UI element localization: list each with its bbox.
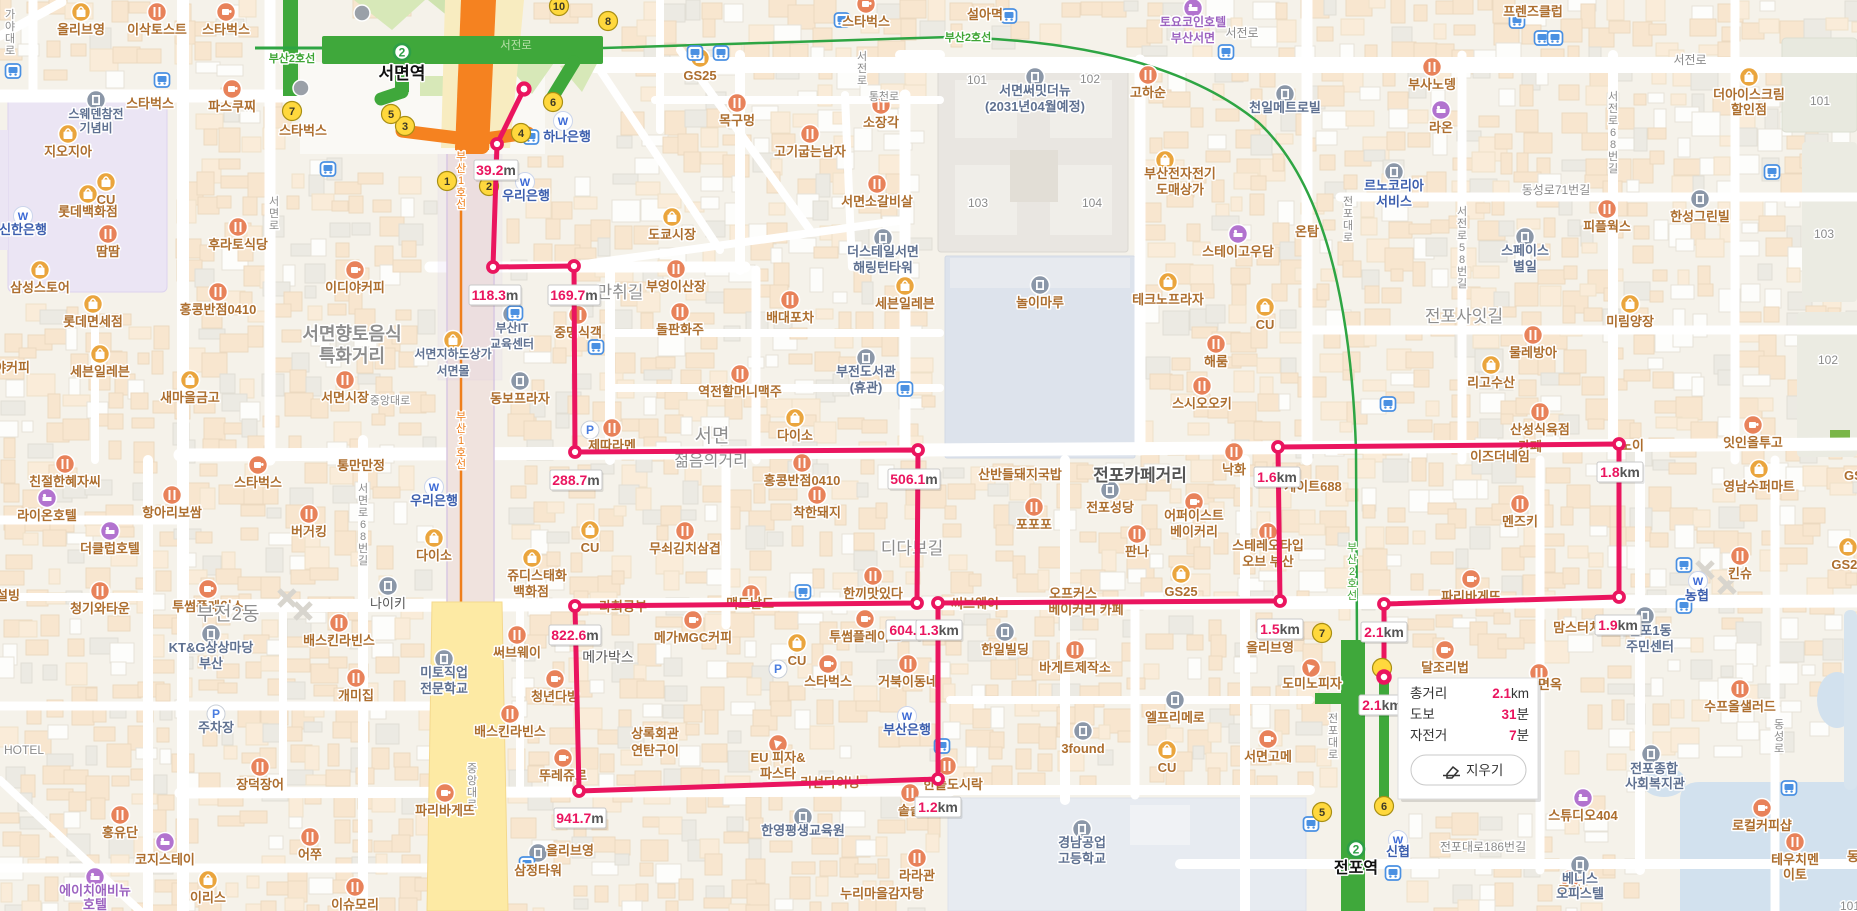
svg-text:부: 부 xyxy=(456,150,466,163)
svg-text:설아멱: 설아멱 xyxy=(967,7,1003,22)
svg-text:신한은행: 신한은행 xyxy=(0,222,47,237)
svg-text:착한돼지: 착한돼지 xyxy=(793,505,841,520)
svg-text:성: 성 xyxy=(1774,730,1784,743)
svg-text:3: 3 xyxy=(402,121,408,133)
svg-text:라온: 라온 xyxy=(1429,120,1453,135)
svg-text:배스킨라빈스: 배스킨라빈스 xyxy=(474,724,546,739)
svg-text:서면역: 서면역 xyxy=(379,64,426,83)
svg-text:스타벅스: 스타벅스 xyxy=(234,475,282,490)
svg-text:이즈더네임: 이즈더네임 xyxy=(1470,449,1530,464)
svg-text:어퍼이스트: 어퍼이스트 xyxy=(1164,508,1224,523)
svg-text:스테레오타입: 스테레오타입 xyxy=(1232,538,1304,553)
svg-text:연탄구이: 연탄구이 xyxy=(631,743,679,758)
svg-text:전: 전 xyxy=(1457,217,1467,230)
svg-text:총거리: 총거리 xyxy=(1410,686,1447,701)
svg-text:사회복지관: 사회복지관 xyxy=(1625,776,1685,791)
svg-text:2: 2 xyxy=(486,181,492,193)
svg-text:자전거: 자전거 xyxy=(1410,728,1447,743)
svg-text:한일빌딩: 한일빌딩 xyxy=(981,642,1029,657)
svg-text:길: 길 xyxy=(1457,277,1467,290)
svg-text:6: 6 xyxy=(550,97,556,109)
svg-text:서면지하도상가: 서면지하도상가 xyxy=(414,346,491,361)
svg-text:6: 6 xyxy=(1610,127,1616,139)
svg-text:롯데면세점: 롯데면세점 xyxy=(63,314,123,329)
svg-text:1: 1 xyxy=(458,175,464,187)
svg-text:미림양장: 미림양장 xyxy=(1606,314,1654,329)
svg-text:땀땀: 땀땀 xyxy=(96,244,120,259)
svg-text:로컬커피샵: 로컬커피샵 xyxy=(1732,818,1792,833)
svg-text:프렌즈클럽: 프렌즈클럽 xyxy=(1503,4,1563,19)
svg-text:포: 포 xyxy=(1343,208,1353,220)
svg-text:고등학교: 고등학교 xyxy=(1058,851,1106,866)
svg-text:스타벅스: 스타벅스 xyxy=(202,22,250,37)
svg-text:전: 전 xyxy=(857,62,867,75)
svg-text:동보프라자: 동보프라자 xyxy=(490,391,550,406)
svg-text:신협: 신협 xyxy=(1386,844,1410,859)
svg-text:고기굽는남자: 고기굽는남자 xyxy=(774,144,846,159)
svg-text:온탐: 온탐 xyxy=(1295,224,1319,239)
svg-text:CU: CU xyxy=(1256,317,1275,332)
svg-text:친절한혜자씨: 친절한혜자씨 xyxy=(29,474,101,489)
svg-text:822.6m: 822.6m xyxy=(551,627,599,643)
svg-text:거북이동네: 거북이동네 xyxy=(878,674,938,689)
svg-text:서: 서 xyxy=(857,50,867,63)
svg-text:이삭토스트: 이삭토스트 xyxy=(127,22,187,37)
svg-text:서: 서 xyxy=(269,195,279,208)
svg-text:부전2동: 부전2동 xyxy=(196,603,259,625)
svg-text:잇인올투고: 잇인올투고 xyxy=(1723,435,1783,450)
svg-text:서: 서 xyxy=(1608,90,1618,103)
svg-text:홍콩반점0410: 홍콩반점0410 xyxy=(764,473,841,488)
svg-text:누리마을감자탕: 누리마을감자탕 xyxy=(840,886,924,901)
svg-text:169.7m: 169.7m xyxy=(550,287,598,303)
svg-text:면옥: 면옥 xyxy=(1538,677,1562,692)
svg-text:우리은행: 우리은행 xyxy=(502,188,550,203)
svg-text:대: 대 xyxy=(1328,736,1338,749)
svg-text:CU: CU xyxy=(1158,760,1177,775)
svg-text:도매상가: 도매상가 xyxy=(1156,182,1204,197)
svg-text:CU: CU xyxy=(97,192,116,207)
svg-text:도쿄시장: 도쿄시장 xyxy=(648,227,696,242)
svg-text:지우기: 지우기 xyxy=(1466,763,1503,778)
svg-text:백화점: 백화점 xyxy=(513,584,549,599)
svg-text:호: 호 xyxy=(456,186,466,199)
svg-text:부산2호선: 부산2호선 xyxy=(945,30,992,44)
svg-text:산: 산 xyxy=(456,162,466,175)
svg-text:288.7m: 288.7m xyxy=(552,472,600,488)
svg-text:8: 8 xyxy=(1610,139,1616,151)
svg-text:메가MGC커피: 메가MGC커피 xyxy=(654,630,732,645)
svg-text:4: 4 xyxy=(518,128,525,140)
svg-text:부: 부 xyxy=(456,410,466,423)
svg-text:르노코리아: 르노코리아 xyxy=(1364,178,1424,193)
svg-text:2: 2 xyxy=(399,46,406,60)
svg-text:941.7m: 941.7m xyxy=(556,810,604,826)
svg-text:삼정타워: 삼정타워 xyxy=(514,863,562,878)
svg-text:미토직업: 미토직업 xyxy=(420,665,468,680)
svg-text:1.6km: 1.6km xyxy=(1257,469,1297,485)
svg-text:6: 6 xyxy=(1381,801,1387,813)
svg-text:스웨덴참전: 스웨덴참전 xyxy=(68,106,123,121)
svg-text:킨슈: 킨슈 xyxy=(1728,566,1752,581)
svg-text:앙: 앙 xyxy=(467,774,477,787)
svg-text:부산은행: 부산은행 xyxy=(883,722,931,737)
svg-text:부산전자전기: 부산전자전기 xyxy=(1144,166,1216,181)
svg-text:1.3km: 1.3km xyxy=(919,622,959,638)
svg-text:별일: 별일 xyxy=(1513,259,1537,274)
svg-text:전포성당: 전포성당 xyxy=(1086,500,1134,515)
svg-text:에이치애비뉴: 에이치애비뉴 xyxy=(59,883,131,898)
svg-text:로: 로 xyxy=(1608,115,1618,127)
svg-text:배스킨라빈스: 배스킨라빈스 xyxy=(303,633,375,648)
svg-text:서면시장: 서면시장 xyxy=(321,390,369,405)
svg-text:메가박스: 메가박스 xyxy=(582,649,634,665)
svg-text:장덕장어: 장덕장어 xyxy=(236,777,284,792)
svg-text:중명식객: 중명식객 xyxy=(554,325,602,340)
svg-text:부엉이산장: 부엉이산장 xyxy=(646,279,706,294)
svg-text:청기와타운: 청기와타운 xyxy=(70,601,130,616)
svg-text:(2031년04월예정): (2031년04월예정) xyxy=(985,99,1085,114)
svg-text:604.: 604. xyxy=(889,622,916,638)
svg-text:서면: 서면 xyxy=(695,425,730,447)
svg-text:도미노피자: 도미노피자 xyxy=(1282,676,1342,691)
svg-text:주민센터: 주민센터 xyxy=(1626,639,1674,654)
svg-text:부사노뎅: 부사노뎅 xyxy=(1408,77,1456,92)
svg-text:면: 면 xyxy=(358,494,368,507)
svg-text:103: 103 xyxy=(1814,227,1834,241)
svg-text:8: 8 xyxy=(605,16,611,28)
svg-text:이토: 이토 xyxy=(1783,867,1807,882)
svg-text:대: 대 xyxy=(467,786,477,799)
svg-text:스타벅스: 스타벅스 xyxy=(126,96,174,111)
svg-text:교육센터: 교육센터 xyxy=(490,336,534,351)
svg-text:8: 8 xyxy=(1459,254,1465,266)
svg-text:면: 면 xyxy=(269,207,279,220)
svg-text:전문학교: 전문학교 xyxy=(420,681,468,696)
svg-text:103: 103 xyxy=(968,196,988,210)
svg-text:멘즈키: 멘즈키 xyxy=(1502,514,1538,529)
svg-text:써브웨이: 써브웨이 xyxy=(493,645,541,660)
svg-text:2.1km: 2.1km xyxy=(1492,686,1529,701)
svg-text:고하순: 고하순 xyxy=(1130,85,1166,100)
svg-text:6: 6 xyxy=(360,519,366,531)
svg-text:파스타: 파스타 xyxy=(760,766,796,781)
svg-text:HOTEL: HOTEL xyxy=(4,743,44,757)
svg-text:1: 1 xyxy=(444,176,450,188)
svg-text:파스쿠찌: 파스쿠찌 xyxy=(208,99,256,114)
svg-text:서: 서 xyxy=(358,482,368,495)
svg-text:서면써밋더뉴: 서면써밋더뉴 xyxy=(999,83,1071,98)
svg-text:이디야커피: 이디야커피 xyxy=(325,280,385,295)
svg-text:도보: 도보 xyxy=(1410,707,1435,722)
svg-text:통만만정: 통만만정 xyxy=(337,458,385,473)
svg-text:선: 선 xyxy=(456,198,466,211)
svg-text:세븐일레븐: 세븐일레븐 xyxy=(875,296,935,311)
svg-text:로: 로 xyxy=(269,220,279,232)
svg-text:다이소: 다이소 xyxy=(416,548,452,563)
svg-text:로: 로 xyxy=(1457,230,1467,242)
svg-text:1.5km: 1.5km xyxy=(1260,621,1300,637)
svg-text:특화거리: 특화거리 xyxy=(319,346,385,366)
svg-text:오브 부산: 오브 부산 xyxy=(1242,554,1293,569)
svg-text:대: 대 xyxy=(5,32,15,45)
svg-text:전포카페거리: 전포카페거리 xyxy=(1093,466,1187,485)
svg-text:올리브영: 올리브영 xyxy=(546,843,594,858)
svg-text:부산IT: 부산IT xyxy=(496,320,529,335)
svg-text:만취길: 만취길 xyxy=(597,283,644,302)
svg-text:호텔: 호텔 xyxy=(83,897,107,911)
svg-text:목구멍: 목구멍 xyxy=(719,113,755,128)
svg-text:EU 피자&: EU 피자& xyxy=(751,750,806,765)
svg-text:중: 중 xyxy=(467,763,477,775)
svg-text:수프올샐러드: 수프올샐러드 xyxy=(1704,699,1776,714)
svg-text:부산서면: 부산서면 xyxy=(1171,30,1215,45)
svg-text:맘스터치: 맘스터치 xyxy=(1553,620,1601,635)
svg-text:서면소갈비살: 서면소갈비살 xyxy=(841,194,913,209)
svg-text:1.2km: 1.2km xyxy=(918,799,958,815)
svg-text:GS25: GS25 xyxy=(1831,557,1857,572)
svg-text:해룸: 해룸 xyxy=(1204,354,1228,369)
svg-text:파리바게뜨: 파리바게뜨 xyxy=(415,803,475,818)
svg-text:로: 로 xyxy=(358,507,368,519)
svg-text:경남공업: 경남공업 xyxy=(1058,835,1106,850)
svg-text:산성식육점: 산성식육점 xyxy=(1510,422,1570,437)
svg-text:설빙: 설빙 xyxy=(0,588,20,603)
svg-text:서전로: 서전로 xyxy=(1225,26,1258,40)
svg-text:P: P xyxy=(774,662,782,676)
svg-text:CU: CU xyxy=(788,653,807,668)
svg-text:서면몰: 서면몰 xyxy=(436,363,469,378)
svg-text:2: 2 xyxy=(1349,566,1355,578)
svg-text:놀이마루: 놀이마루 xyxy=(1016,295,1064,310)
svg-text:우리은행: 우리은행 xyxy=(410,493,458,508)
svg-text:102: 102 xyxy=(1080,72,1100,86)
svg-text:하나은행: 하나은행 xyxy=(543,129,591,144)
svg-text:물레방아: 물레방아 xyxy=(1509,345,1557,360)
svg-text:가: 가 xyxy=(5,8,15,21)
svg-text:라라관: 라라관 xyxy=(899,868,935,883)
svg-text:101: 101 xyxy=(967,73,987,87)
svg-text:항아리보쌈: 항아리보쌈 xyxy=(142,505,202,520)
svg-text:젊음의거리: 젊음의거리 xyxy=(674,452,748,470)
svg-text:101: 101 xyxy=(1810,94,1830,108)
svg-text:오피스텔: 오피스텔 xyxy=(1556,886,1604,901)
svg-text:베이커리: 베이커리 xyxy=(1170,524,1218,539)
svg-text:라이온호텔: 라이온호텔 xyxy=(17,508,77,523)
svg-text:GS25: GS25 xyxy=(683,68,716,83)
svg-text:중앙대로: 중앙대로 xyxy=(370,394,410,407)
svg-text:GS2: GS2 xyxy=(1844,468,1857,483)
svg-text:전포대로186번길: 전포대로186번길 xyxy=(1440,840,1526,854)
svg-text:포: 포 xyxy=(1328,725,1338,737)
svg-text:로: 로 xyxy=(1328,749,1338,761)
svg-text:로: 로 xyxy=(1774,743,1784,755)
svg-text:해링턴타워: 해링턴타워 xyxy=(853,260,913,275)
svg-text:동: 동 xyxy=(1774,719,1784,731)
svg-text:지오지아: 지오지아 xyxy=(44,144,92,159)
svg-text:동: 동 xyxy=(1847,849,1857,864)
svg-text:로: 로 xyxy=(5,45,15,57)
svg-text:102: 102 xyxy=(1818,353,1838,367)
svg-text:코지스테이: 코지스테이 xyxy=(135,852,195,867)
svg-text:7: 7 xyxy=(1319,628,1325,640)
svg-text:올리브영: 올리브영 xyxy=(1246,640,1294,655)
svg-text:1.8km: 1.8km xyxy=(1600,464,1640,480)
svg-text:2.1km: 2.1km xyxy=(1364,624,1404,640)
svg-text:5: 5 xyxy=(1319,807,1325,819)
svg-text:나이키: 나이키 xyxy=(370,596,406,611)
svg-text:역전할머니맥주: 역전할머니맥주 xyxy=(698,384,782,399)
svg-text:개미집: 개미집 xyxy=(338,688,374,703)
svg-text:길: 길 xyxy=(358,554,368,567)
svg-text:다이소: 다이소 xyxy=(777,428,813,443)
svg-text:전: 전 xyxy=(1608,102,1618,115)
svg-text:삼성스토어: 삼성스토어 xyxy=(10,280,70,295)
svg-text:101: 101 xyxy=(1840,899,1857,911)
svg-text:선: 선 xyxy=(456,458,466,471)
svg-text:포포포: 포포포 xyxy=(1016,517,1052,532)
svg-text:어쭈: 어쭈 xyxy=(298,847,322,862)
svg-text:호: 호 xyxy=(1347,577,1357,590)
svg-text:상록회관: 상록회관 xyxy=(631,726,679,741)
svg-text:호: 호 xyxy=(456,446,466,459)
svg-text:W: W xyxy=(558,116,569,128)
svg-text:쥬디스태화: 쥬디스태화 xyxy=(507,568,567,583)
svg-text:스페이스: 스페이스 xyxy=(1501,243,1549,258)
svg-text:스타벅스: 스타벅스 xyxy=(804,674,852,689)
svg-text:테크노프라자: 테크노프라자 xyxy=(1132,292,1204,307)
svg-text:부전도서관: 부전도서관 xyxy=(836,364,896,379)
svg-text:로: 로 xyxy=(857,75,867,87)
svg-text:이리스: 이리스 xyxy=(190,890,226,905)
svg-text:전포사잇길: 전포사잇길 xyxy=(1425,307,1503,326)
svg-text:W: W xyxy=(1693,576,1704,588)
svg-text:토요코인호텔: 토요코인호텔 xyxy=(1160,14,1226,29)
svg-text:통천로: 통천로 xyxy=(869,89,899,103)
svg-text:전: 전 xyxy=(1328,712,1338,725)
svg-text:부: 부 xyxy=(1347,541,1357,554)
svg-text:서: 서 xyxy=(1457,205,1467,218)
svg-text:1: 1 xyxy=(458,435,464,447)
svg-text:서비스: 서비스 xyxy=(1376,194,1412,209)
svg-text:무쇠김치삼겹: 무쇠김치삼겹 xyxy=(649,541,721,556)
svg-text:번: 번 xyxy=(1457,265,1467,278)
svg-text:바게트제작소: 바게트제작소 xyxy=(1039,660,1111,675)
svg-text:전포역: 전포역 xyxy=(1334,859,1378,877)
svg-text:1.9km: 1.9km xyxy=(1598,617,1638,633)
svg-text:길: 길 xyxy=(1608,162,1618,175)
svg-text:서면고메: 서면고메 xyxy=(1244,749,1292,764)
svg-text:2.1km: 2.1km xyxy=(1362,697,1402,713)
svg-text:주차장: 주차장 xyxy=(198,720,234,735)
svg-text:서전로: 서전로 xyxy=(500,39,532,52)
svg-text:판나: 판나 xyxy=(1125,544,1149,559)
svg-text:엘프리메로: 엘프리메로 xyxy=(1145,710,1205,725)
svg-text:39.2m: 39.2m xyxy=(476,162,516,178)
svg-text:청년다방: 청년다방 xyxy=(531,689,579,704)
svg-text:서면향토음식: 서면향토음식 xyxy=(302,324,401,344)
svg-text:P: P xyxy=(586,423,594,437)
svg-text:야커피: 야커피 xyxy=(0,360,30,375)
svg-text:더아이스크림: 더아이스크림 xyxy=(1713,87,1785,102)
svg-text:로: 로 xyxy=(1343,232,1353,244)
svg-text:스타벅스: 스타벅스 xyxy=(842,14,890,29)
svg-text:천일메트로빌: 천일메트로빌 xyxy=(1249,100,1321,115)
svg-text:스튜디오404: 스튜디오404 xyxy=(1548,808,1618,823)
svg-text:7: 7 xyxy=(289,106,295,118)
svg-text:118.3m: 118.3m xyxy=(472,287,519,303)
svg-text:한끼맛있다: 한끼맛있다 xyxy=(843,586,903,601)
svg-text:전포종합: 전포종합 xyxy=(1630,761,1678,776)
svg-text:달조리법: 달조리법 xyxy=(1421,660,1469,675)
svg-text:2: 2 xyxy=(1353,843,1360,857)
svg-text:이슈모리: 이슈모리 xyxy=(331,897,379,911)
svg-text:번: 번 xyxy=(1608,150,1618,163)
svg-text:전: 전 xyxy=(1343,195,1353,208)
svg-text:배대포차: 배대포차 xyxy=(766,310,814,325)
svg-text:소장각: 소장각 xyxy=(863,115,899,130)
svg-text:낙화: 낙화 xyxy=(1222,462,1246,477)
svg-text:산반들돼지국밥: 산반들돼지국밥 xyxy=(978,467,1062,482)
svg-text:농협: 농협 xyxy=(1685,588,1709,603)
svg-text:기념비: 기념비 xyxy=(79,120,112,135)
svg-text:새마을금고: 새마을금고 xyxy=(160,390,220,405)
svg-text:홍콩반점0410: 홍콩반점0410 xyxy=(180,302,257,317)
svg-text:104: 104 xyxy=(1082,196,1102,210)
svg-text:5: 5 xyxy=(1459,242,1465,254)
svg-text:돌판화주: 돌판화주 xyxy=(656,322,704,337)
svg-text:(휴관): (휴관) xyxy=(850,380,883,395)
svg-text:디다보길: 디다보길 xyxy=(881,539,944,558)
svg-text:베니스: 베니스 xyxy=(1562,871,1598,886)
svg-text:서전로: 서전로 xyxy=(1673,53,1706,67)
svg-text:버거킹: 버거킹 xyxy=(291,524,327,539)
svg-text:스시오오키: 스시오오키 xyxy=(1172,396,1232,411)
svg-text:부산: 부산 xyxy=(199,656,223,671)
svg-text:10: 10 xyxy=(553,1,565,13)
svg-text:선: 선 xyxy=(1347,589,1357,602)
svg-text:테우치멘: 테우치멘 xyxy=(1771,852,1819,867)
svg-text:후라토식당: 후라토식당 xyxy=(208,237,268,252)
svg-text:더스테일서면: 더스테일서면 xyxy=(847,244,919,259)
svg-text:할인점: 할인점 xyxy=(1731,102,1767,117)
svg-text:번: 번 xyxy=(358,542,368,555)
svg-text:영남수퍼마트: 영남수퍼마트 xyxy=(1723,479,1795,494)
svg-text:리고수산: 리고수산 xyxy=(1467,375,1515,390)
svg-text:피플웍스: 피플웍스 xyxy=(1583,219,1631,234)
svg-text:GS25: GS25 xyxy=(1164,584,1197,599)
svg-text:부산2호선: 부산2호선 xyxy=(269,51,316,65)
svg-text:31분: 31분 xyxy=(1502,707,1529,722)
svg-text:스타벅스: 스타벅스 xyxy=(279,123,327,138)
svg-text:5: 5 xyxy=(388,109,394,121)
svg-text:올리브영: 올리브영 xyxy=(57,22,105,37)
svg-text:홍유단: 홍유단 xyxy=(102,825,138,840)
svg-text:세븐일레븐: 세븐일레븐 xyxy=(70,364,130,379)
svg-text:산: 산 xyxy=(456,422,466,435)
svg-text:대: 대 xyxy=(1343,219,1353,232)
svg-text:한영평생교육원: 한영평생교육원 xyxy=(761,823,845,838)
svg-text:KT&G상상마당: KT&G상상마당 xyxy=(169,640,254,655)
svg-text:506.1m: 506.1m xyxy=(890,471,938,487)
svg-text:야: 야 xyxy=(5,20,15,33)
svg-text:동성로71번길: 동성로71번길 xyxy=(1522,183,1591,197)
svg-text:P: P xyxy=(212,707,220,721)
svg-text:8: 8 xyxy=(360,531,366,543)
svg-text:산: 산 xyxy=(1347,553,1357,566)
svg-text:CU: CU xyxy=(581,540,600,555)
svg-text:3found: 3found xyxy=(1061,741,1104,756)
